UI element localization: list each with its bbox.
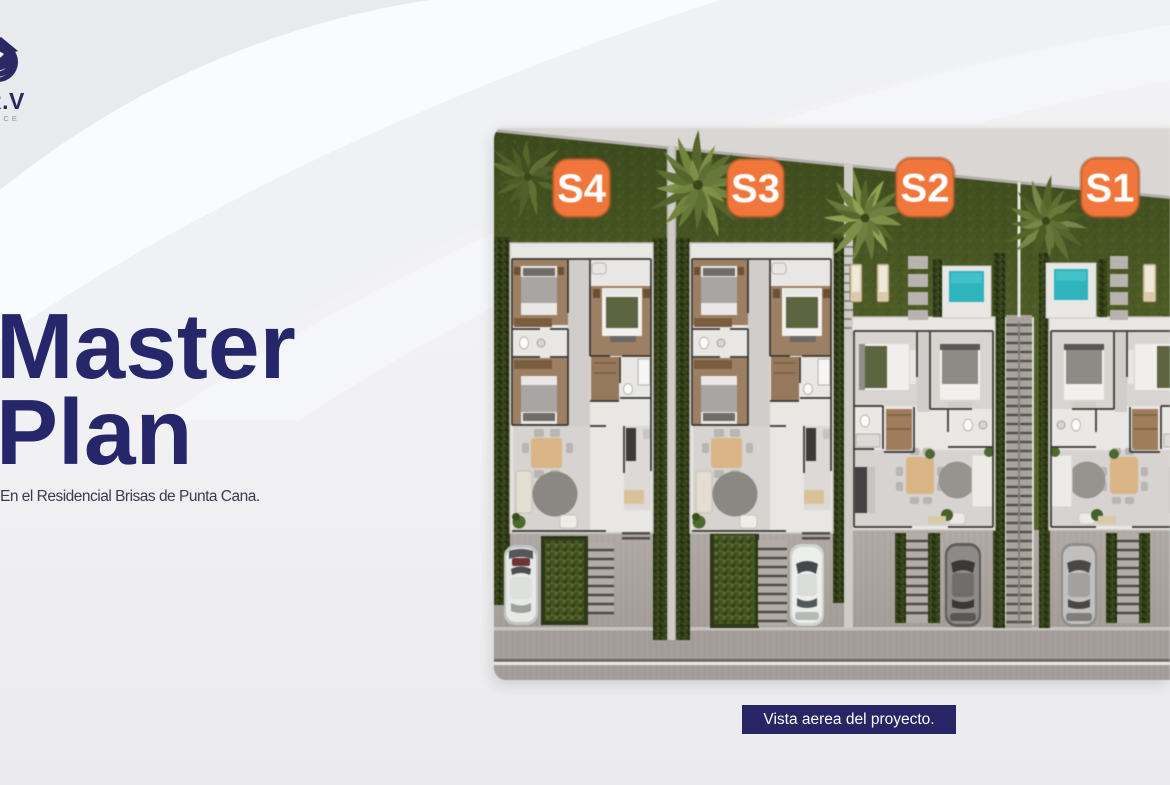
- svg-text:S4: S4: [557, 167, 607, 211]
- svg-text:ENCE: ENCE: [0, 114, 20, 123]
- svg-text:R.V: R.V: [0, 88, 25, 114]
- svg-text:S1: S1: [1086, 167, 1135, 211]
- svg-text:S2: S2: [901, 167, 950, 211]
- svg-text:S3: S3: [731, 167, 780, 211]
